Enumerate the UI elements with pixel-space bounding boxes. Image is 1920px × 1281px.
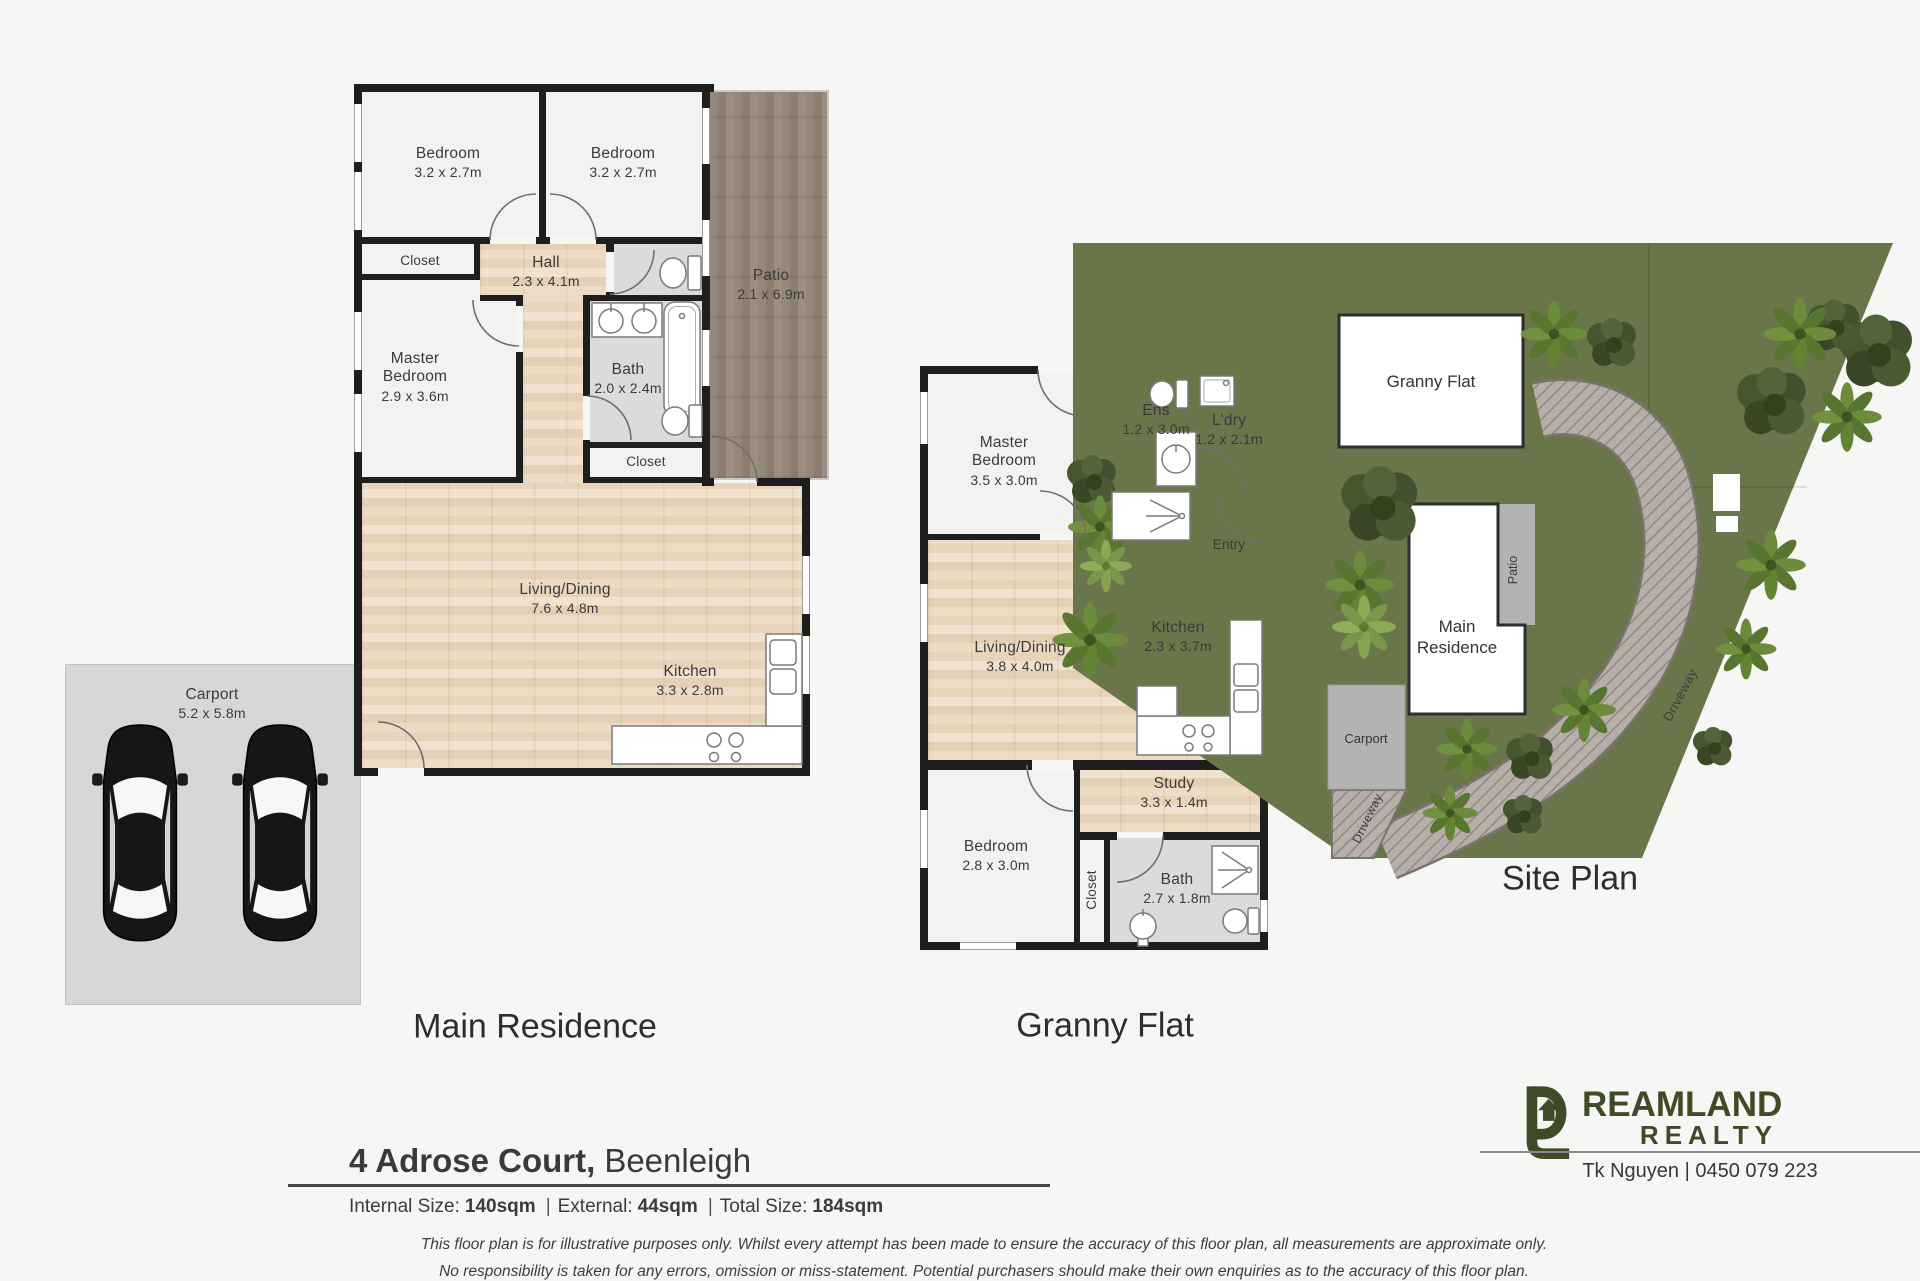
wall-segment: [1016, 942, 1268, 950]
internal-size-label: Internal Size:: [349, 1196, 460, 1217]
site-parcel-line: [1649, 243, 1807, 487]
room-label-kitchen: Kitchen 3.3 x 2.8m: [656, 663, 723, 699]
wall-segment: [1074, 770, 1080, 942]
wall-segment: [1260, 543, 1268, 620]
wall-segment: [802, 480, 810, 556]
room-label-patio: Patio 2.1 x 6.9m: [737, 267, 804, 303]
tree-icon: [1521, 301, 1588, 368]
wall-segment: [516, 301, 523, 306]
disclaimer: This floor plan is for illustrative purp…: [284, 1231, 1684, 1281]
wall-segment: [539, 84, 546, 244]
wall-segment: [1085, 534, 1106, 540]
total-size-label: Total Size:: [720, 1196, 808, 1217]
wall-segment: [583, 442, 710, 448]
site-granny-flat-box: [1339, 315, 1523, 447]
tree-icon: [1716, 619, 1777, 680]
tree-icon: [1587, 318, 1636, 366]
wall-segment: [1240, 491, 1260, 497]
wall-segment: [354, 452, 362, 768]
wall-segment: [1260, 740, 1268, 900]
wall-segment: [1260, 652, 1268, 708]
tree-icon: [1552, 678, 1616, 742]
brand-realty: REALTY: [1582, 1120, 1778, 1151]
room-label-master: Master Bedroom 2.9 x 3.6m: [371, 350, 459, 404]
room-label-hall: Hall 2.3 x 4.1m: [512, 254, 579, 290]
site-label-main-line1: Main: [1439, 617, 1476, 636]
wall-segment: [1158, 366, 1228, 374]
window: [702, 108, 710, 164]
separator: |: [546, 1196, 551, 1217]
brand-wordmark: REAMLAND: [1582, 1085, 1782, 1125]
window: [802, 636, 810, 694]
room-hall-stem: [523, 295, 583, 483]
window: [1128, 366, 1158, 374]
room-label-carport: Carport 5.2 x 5.8m: [178, 686, 245, 722]
external-size-label: External:: [558, 1196, 633, 1217]
room-label-living: Living/Dining 7.6 x 4.8m: [519, 581, 610, 617]
room-label-bath: Bath 2.0 x 2.4m: [594, 361, 661, 397]
gf-entry-porch: [1268, 500, 1292, 560]
wall-segment: [354, 477, 523, 483]
wall-segment: [1077, 832, 1117, 840]
wall-segment: [1163, 832, 1260, 840]
wall-segment: [354, 162, 362, 172]
wall-segment: [474, 244, 480, 280]
gf-label-bedroom: Bedroom 2.8 x 3.0m: [962, 838, 1029, 874]
wall-segment: [1084, 366, 1128, 374]
gf-label-ldry: L'dry 1.2 x 2.1m: [1195, 412, 1262, 448]
wall-segment: [802, 614, 810, 636]
tree-icon: [1808, 300, 1859, 350]
site-label-driveway-2: Driveway: [1349, 791, 1385, 845]
window: [354, 172, 362, 230]
wall-segment: [920, 760, 1032, 770]
wall-segment: [354, 370, 362, 394]
tree-icon: [1437, 719, 1498, 780]
window: [920, 392, 928, 444]
gf-label-bath: Bath 2.7 x 1.8m: [1143, 871, 1210, 907]
site-label-patio: Patio: [1506, 556, 1520, 585]
site-main-residence-box: [1409, 504, 1525, 714]
window: [1228, 366, 1256, 374]
wall-segment: [1260, 932, 1268, 950]
external-size-value: 44sqm: [638, 1196, 698, 1217]
window: [1260, 708, 1268, 740]
wall-segment: [354, 84, 362, 104]
address-street: 4 Adrose Court,: [349, 1142, 595, 1179]
window: [354, 104, 362, 162]
separator: |: [708, 1196, 713, 1217]
site-pad-small: [1716, 516, 1738, 532]
site-label-granny-flat: Granny Flat: [1387, 372, 1476, 391]
agent-contact: Tk Nguyen | 0450 079 223: [1480, 1160, 1920, 1183]
gf-label-ens: Ens 1.2 x 3.0m: [1122, 402, 1189, 438]
dreamland-monogram-icon: [1516, 1078, 1578, 1162]
room-label-closet2: Closet: [626, 454, 665, 470]
window: [702, 220, 710, 276]
gf-label-entry: Entry: [1213, 537, 1246, 553]
site-label-driveway: Driveway: [1660, 666, 1700, 724]
tree-icon: [1764, 298, 1837, 371]
wall-segment: [354, 84, 714, 92]
site-patio-strip: [1498, 504, 1535, 625]
wall-segment: [1106, 539, 1196, 545]
gf-label-study: Study 3.3 x 1.4m: [1140, 775, 1207, 811]
wall-segment: [354, 237, 490, 244]
wall-segment: [1104, 838, 1110, 942]
window: [354, 312, 362, 370]
site-label-main-line2: Residence: [1417, 638, 1497, 657]
tree-icon: [1325, 550, 1395, 620]
wall-segment: [702, 276, 710, 330]
wall-segment: [920, 366, 1038, 374]
wall-segment: [354, 768, 378, 776]
wall-segment: [702, 478, 714, 486]
tree-icon: [1737, 367, 1806, 434]
room-label-bedroom1: Bedroom 3.2 x 2.7m: [414, 145, 481, 181]
wall-segment: [583, 295, 710, 301]
room-living-dining: [362, 483, 802, 768]
floorplan-page: Granny Flat Main Residence Carport Patio…: [0, 0, 1920, 1281]
size-summary: Internal Size:140sqm|External:44sqm|Tota…: [349, 1196, 886, 1218]
wall-segment: [920, 534, 1040, 540]
tree-icon: [1693, 727, 1732, 765]
total-size-value: 184sqm: [812, 1196, 883, 1217]
window: [802, 556, 810, 614]
room-label-closet1: Closet: [400, 253, 439, 269]
agent-divider: [1480, 1151, 1920, 1153]
wall-segment: [424, 768, 810, 776]
window: [354, 394, 362, 452]
window: [920, 584, 928, 642]
window: [1260, 620, 1268, 652]
wall-segment: [1073, 760, 1260, 770]
wall-segment: [702, 164, 710, 220]
site-carport-box: [1328, 685, 1405, 789]
gf-label-master: Master Bedroom 3.5 x 3.0m: [956, 434, 1052, 488]
tree-icon: [1422, 785, 1477, 840]
wall-segment: [606, 244, 614, 252]
wall-segment: [596, 237, 710, 244]
wall-segment: [354, 274, 480, 280]
disclaimer-line2: No responsibility is taken for any error…: [284, 1258, 1684, 1281]
wall-segment: [1196, 491, 1204, 497]
tree-icon: [1332, 595, 1396, 659]
internal-size-value: 140sqm: [465, 1196, 536, 1217]
disclaimer-line1: This floor plan is for illustrative purp…: [284, 1231, 1684, 1258]
wall-segment: [1190, 491, 1196, 545]
window: [960, 942, 1016, 950]
tree-icon: [1503, 795, 1542, 833]
room-wc: [614, 244, 702, 295]
wall-segment: [354, 230, 362, 312]
title-granny-flat: Granny Flat: [1016, 1007, 1194, 1046]
tree-icon: [1506, 733, 1553, 779]
wall-segment: [920, 642, 928, 810]
address-divider: [288, 1184, 1050, 1187]
title-site-plan: Site Plan: [1502, 860, 1638, 899]
window: [1260, 900, 1268, 932]
gf-label-kitchen: Kitchen 2.3 x 3.7m: [1144, 619, 1211, 655]
wall-segment: [920, 444, 928, 584]
address-suburb: Beenleigh: [604, 1142, 751, 1179]
wall-segment: [516, 352, 523, 477]
wall-segment: [1100, 374, 1106, 534]
wall-segment: [920, 868, 928, 950]
window: [920, 810, 928, 868]
wall-segment: [583, 477, 710, 483]
room-label-bedroom2: Bedroom 3.2 x 2.7m: [589, 145, 656, 181]
tree-icon: [1736, 530, 1806, 600]
site-driveway: [1332, 407, 1671, 858]
site-label-carport: Carport: [1344, 731, 1388, 746]
wall-segment: [583, 295, 590, 396]
window: [702, 330, 710, 386]
tree-icon: [1839, 315, 1913, 387]
wall-segment: [702, 386, 710, 480]
site-pad-large: [1713, 474, 1740, 511]
tree-icon: [1341, 466, 1417, 540]
property-address: 4 Adrose Court,Beenleigh: [349, 1142, 751, 1180]
wall-segment: [920, 366, 928, 392]
gf-label-living: Living/Dining 3.8 x 4.0m: [974, 639, 1065, 675]
wall-segment: [702, 84, 710, 108]
gf-label-closet: Closet: [1084, 870, 1100, 909]
title-main-residence: Main Residence: [413, 1008, 657, 1047]
wall-segment: [802, 694, 810, 776]
gf-room-ens: [1106, 374, 1190, 539]
tree-icon: [1812, 382, 1882, 452]
